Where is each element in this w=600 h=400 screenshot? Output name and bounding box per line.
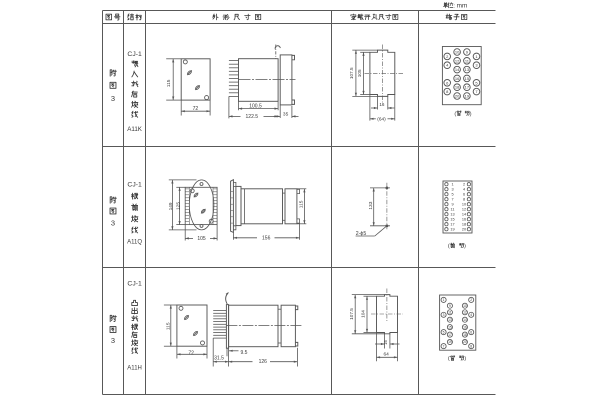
svg-text:4: 4 <box>470 313 472 317</box>
svg-text:13: 13 <box>448 318 452 322</box>
svg-text:104: 104 <box>361 310 366 318</box>
svg-text:16: 16 <box>462 218 466 222</box>
svg-text:14: 14 <box>462 213 466 217</box>
svg-text:A11K: A11K <box>127 126 143 133</box>
svg-text:19: 19 <box>450 228 454 232</box>
svg-text:6: 6 <box>470 330 472 334</box>
svg-text:13: 13 <box>465 67 470 72</box>
svg-text:7: 7 <box>443 344 445 348</box>
svg-text:3: 3 <box>443 313 445 317</box>
svg-text:2: 2 <box>463 183 465 187</box>
svg-text:125: 125 <box>175 202 181 210</box>
svg-text:72: 72 <box>193 106 199 112</box>
svg-text:15: 15 <box>450 218 454 222</box>
svg-text:20: 20 <box>455 94 460 99</box>
svg-text:9.5: 9.5 <box>241 350 248 356</box>
svg-text:15: 15 <box>465 76 470 81</box>
svg-text:149: 149 <box>168 202 174 210</box>
svg-text:156: 156 <box>262 236 271 242</box>
svg-text:16: 16 <box>455 76 460 81</box>
svg-text:16: 16 <box>463 325 467 329</box>
svg-text:17: 17 <box>448 333 452 337</box>
svg-text:115: 115 <box>166 79 172 87</box>
svg-text:126: 126 <box>259 359 268 365</box>
svg-text:): ) <box>464 356 466 362</box>
svg-text:3: 3 <box>111 219 115 228</box>
svg-text:16: 16 <box>379 102 385 107</box>
svg-text:8: 8 <box>470 344 472 348</box>
svg-text:20: 20 <box>463 340 467 344</box>
svg-text:18: 18 <box>455 85 460 90</box>
svg-text:18: 18 <box>462 223 466 227</box>
svg-text:10: 10 <box>455 50 460 55</box>
svg-text:12: 12 <box>463 311 467 315</box>
svg-text:CJ-1: CJ-1 <box>127 281 142 288</box>
svg-text:3: 3 <box>111 336 115 345</box>
svg-text:14: 14 <box>455 67 460 72</box>
svg-text:35: 35 <box>283 111 289 117</box>
svg-text:14: 14 <box>463 318 467 322</box>
svg-text:133: 133 <box>368 201 374 209</box>
svg-text:10: 10 <box>463 304 467 308</box>
svg-text:72: 72 <box>188 351 194 357</box>
svg-text:17: 17 <box>465 85 470 90</box>
svg-text:64: 64 <box>384 351 390 357</box>
svg-text:11: 11 <box>448 311 452 315</box>
svg-text:19: 19 <box>448 340 452 344</box>
svg-text:18: 18 <box>463 333 467 337</box>
svg-text:3: 3 <box>111 94 115 103</box>
svg-text:(: ( <box>448 244 450 250</box>
svg-text:7: 7 <box>451 198 453 202</box>
svg-text:12: 12 <box>462 208 466 212</box>
svg-text:12: 12 <box>455 58 460 63</box>
svg-text:115: 115 <box>166 322 172 330</box>
svg-text:11: 11 <box>451 208 455 212</box>
svg-text:A11H: A11H <box>127 366 142 372</box>
svg-text:3: 3 <box>451 188 453 192</box>
svg-text:10: 10 <box>462 203 466 207</box>
svg-text:1: 1 <box>451 183 453 187</box>
svg-text:107.5: 107.5 <box>349 308 354 320</box>
svg-text:): ) <box>470 111 472 117</box>
svg-text:105: 105 <box>357 69 362 77</box>
svg-text:17: 17 <box>450 223 454 227</box>
svg-text:A11Q: A11Q <box>127 240 142 246</box>
svg-text:9: 9 <box>451 203 453 207</box>
svg-text:2: 2 <box>470 298 472 302</box>
svg-text:16: 16 <box>383 340 388 345</box>
svg-text:8: 8 <box>463 198 465 202</box>
svg-text:107.5: 107.5 <box>349 67 354 79</box>
svg-text:20: 20 <box>462 228 466 232</box>
svg-text:(: ( <box>454 111 456 117</box>
svg-text:(64): (64) <box>377 117 386 123</box>
svg-text:4: 4 <box>463 188 465 192</box>
svg-text:122.5: 122.5 <box>246 114 259 120</box>
svg-text:31.5: 31.5 <box>214 355 224 361</box>
svg-text:15: 15 <box>448 325 452 329</box>
svg-text:): ) <box>464 244 466 250</box>
svg-text:1: 1 <box>443 298 445 302</box>
svg-text:100.5: 100.5 <box>249 104 262 110</box>
svg-text:115: 115 <box>299 200 305 208</box>
svg-text:105: 105 <box>197 236 206 242</box>
svg-text:5: 5 <box>451 193 453 197</box>
svg-text:19: 19 <box>465 94 470 99</box>
svg-text:9: 9 <box>449 304 451 308</box>
svg-text:6: 6 <box>463 193 465 197</box>
svg-text:(: ( <box>448 356 450 362</box>
svg-text:CJ-1: CJ-1 <box>127 182 142 189</box>
svg-text:5: 5 <box>443 330 445 334</box>
svg-text:mm: mm <box>457 3 468 10</box>
svg-text:13: 13 <box>450 213 454 217</box>
svg-text:CJ-1: CJ-1 <box>127 51 142 58</box>
